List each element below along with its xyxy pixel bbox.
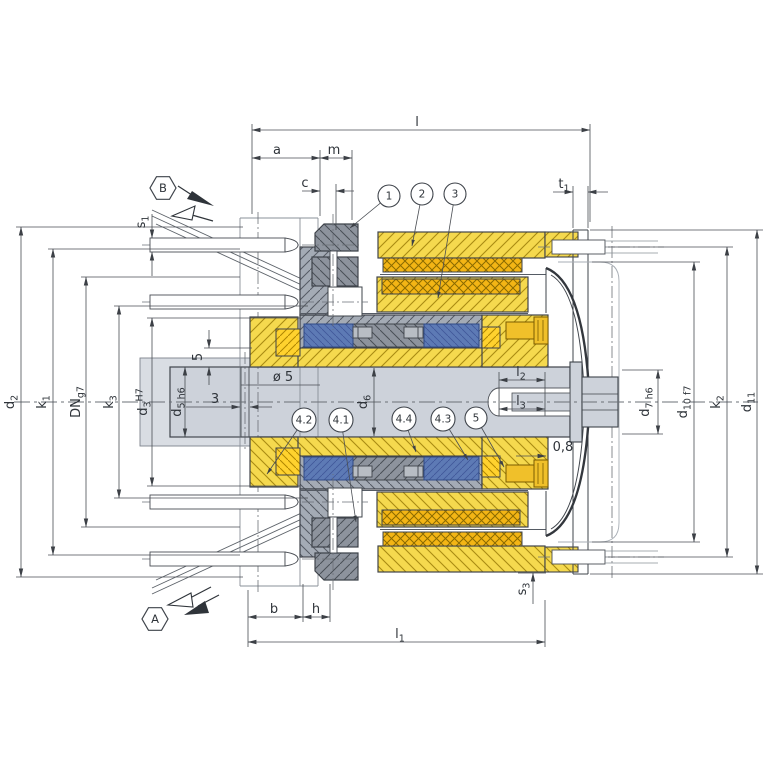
dim-label: d10 f7: [676, 386, 694, 419]
dim-label: h: [312, 602, 320, 617]
dim-label: DNg7: [69, 386, 87, 418]
dim-label: a: [273, 143, 281, 158]
dim-label: s3: [515, 583, 533, 596]
callout-number: 1: [386, 191, 393, 203]
callout-number: 4.3: [435, 414, 452, 426]
dim-label: c: [301, 176, 308, 191]
dim-label: d11: [740, 392, 758, 412]
view-marker-letter: A: [151, 612, 159, 626]
clutch-section-drawing: 1234.24.14.44.35 BA lamct1s1d2k1DNg7k3d3…: [0, 0, 768, 768]
dim-label: k1: [35, 395, 53, 409]
dim-label: t1: [558, 177, 569, 195]
dim-label: b: [270, 602, 278, 617]
dim-label: 0,8: [553, 440, 574, 455]
dim-label: m: [328, 143, 341, 158]
callout-number: 4.2: [296, 415, 313, 427]
dim-label: ø 5: [273, 370, 293, 385]
dim-label: k3: [102, 395, 120, 409]
view-marker-letter: B: [159, 181, 167, 195]
technical-drawing-page: Sectional technical drawing of an electr…: [0, 0, 768, 768]
view-arrow-A: [168, 587, 219, 615]
dim-label: d2: [3, 395, 21, 409]
callout-number: 3: [452, 189, 459, 201]
callout-number: 4.1: [333, 415, 350, 427]
dim-label: 3: [211, 392, 219, 407]
dim-label: 5: [191, 353, 206, 361]
dim-label: l: [415, 115, 419, 130]
dim-label: s1: [134, 216, 152, 229]
view-arrow-B: [172, 186, 214, 221]
callout-number: 5: [473, 413, 480, 425]
callout-number: 2: [419, 189, 426, 201]
dim-label: k2: [709, 395, 727, 409]
dim-label: l1: [395, 627, 405, 645]
callout-number: 4.4: [396, 414, 413, 426]
